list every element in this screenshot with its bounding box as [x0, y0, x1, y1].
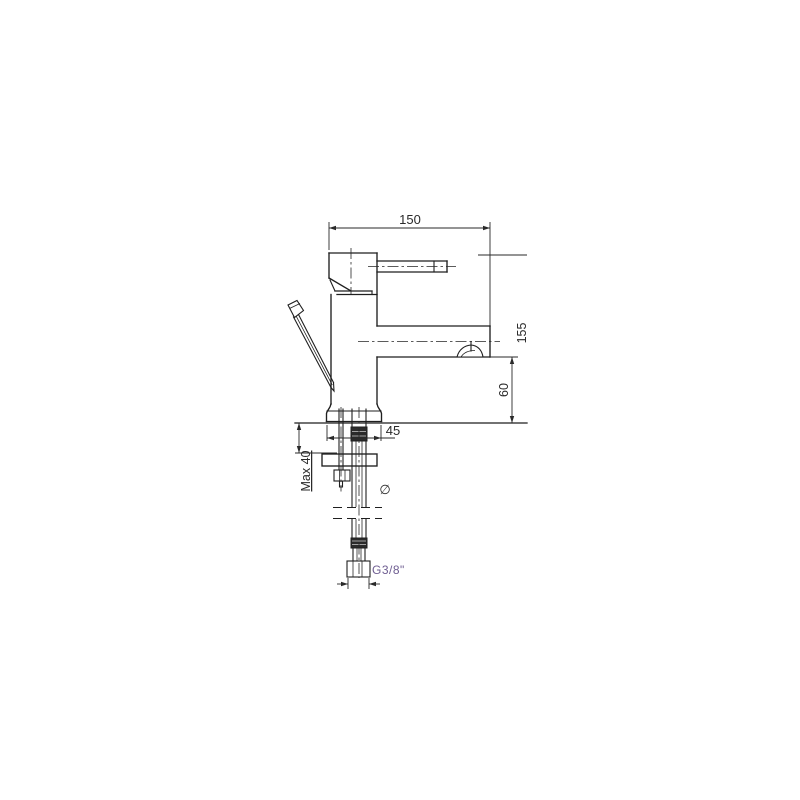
dim-45-label: 45 [386, 423, 400, 438]
pipe-break-lines [333, 508, 382, 519]
mounting-hardware [322, 409, 377, 577]
dimension-max40-deck-thickness: Max 40 [295, 423, 337, 492]
spout-aerator [457, 342, 483, 358]
base-flare-right [377, 404, 382, 422]
fitting-hex-nut [347, 561, 370, 577]
arrow-right [483, 226, 490, 230]
lever-shaft-right-line [299, 315, 334, 383]
product-technical-drawing-image: 150 155 60 45 Max 40 G3/8" [0, 0, 800, 800]
dim-g38-label: G3/8" [372, 563, 405, 577]
lever-shaft-highlight [296, 316, 332, 385]
arrow-down [510, 416, 514, 423]
base-flare-left [327, 404, 332, 422]
arrow-up [297, 423, 301, 430]
lever-shaft-left-line [294, 317, 332, 388]
dim-155-label: 155 [515, 323, 529, 344]
dimension-150-spout-reach: 150 [329, 212, 490, 326]
dimension-60-spout-clearance: 60 [490, 357, 518, 423]
arrow-inward-left [341, 582, 348, 586]
diameter-symbol: ∅ [379, 482, 390, 497]
dim-60-label: 60 [497, 383, 511, 397]
arrow-up [510, 357, 514, 364]
dimension-155-overall-height: 155 [478, 255, 529, 343]
lever-knob [288, 301, 304, 318]
dim-150-label: 150 [399, 212, 421, 227]
stud-nut [334, 470, 350, 481]
mounting-washer [322, 454, 377, 466]
arrow-left [329, 226, 336, 230]
arrow-inward-right [369, 582, 376, 586]
technical-drawing-canvas: 150 155 60 45 Max 40 G3/8" [0, 0, 800, 800]
dim-max40-label: Max 40 [299, 450, 313, 491]
handle-lever [288, 301, 334, 392]
arrow-left [327, 436, 334, 440]
centerlines [341, 248, 500, 578]
arrow-right [374, 436, 381, 440]
